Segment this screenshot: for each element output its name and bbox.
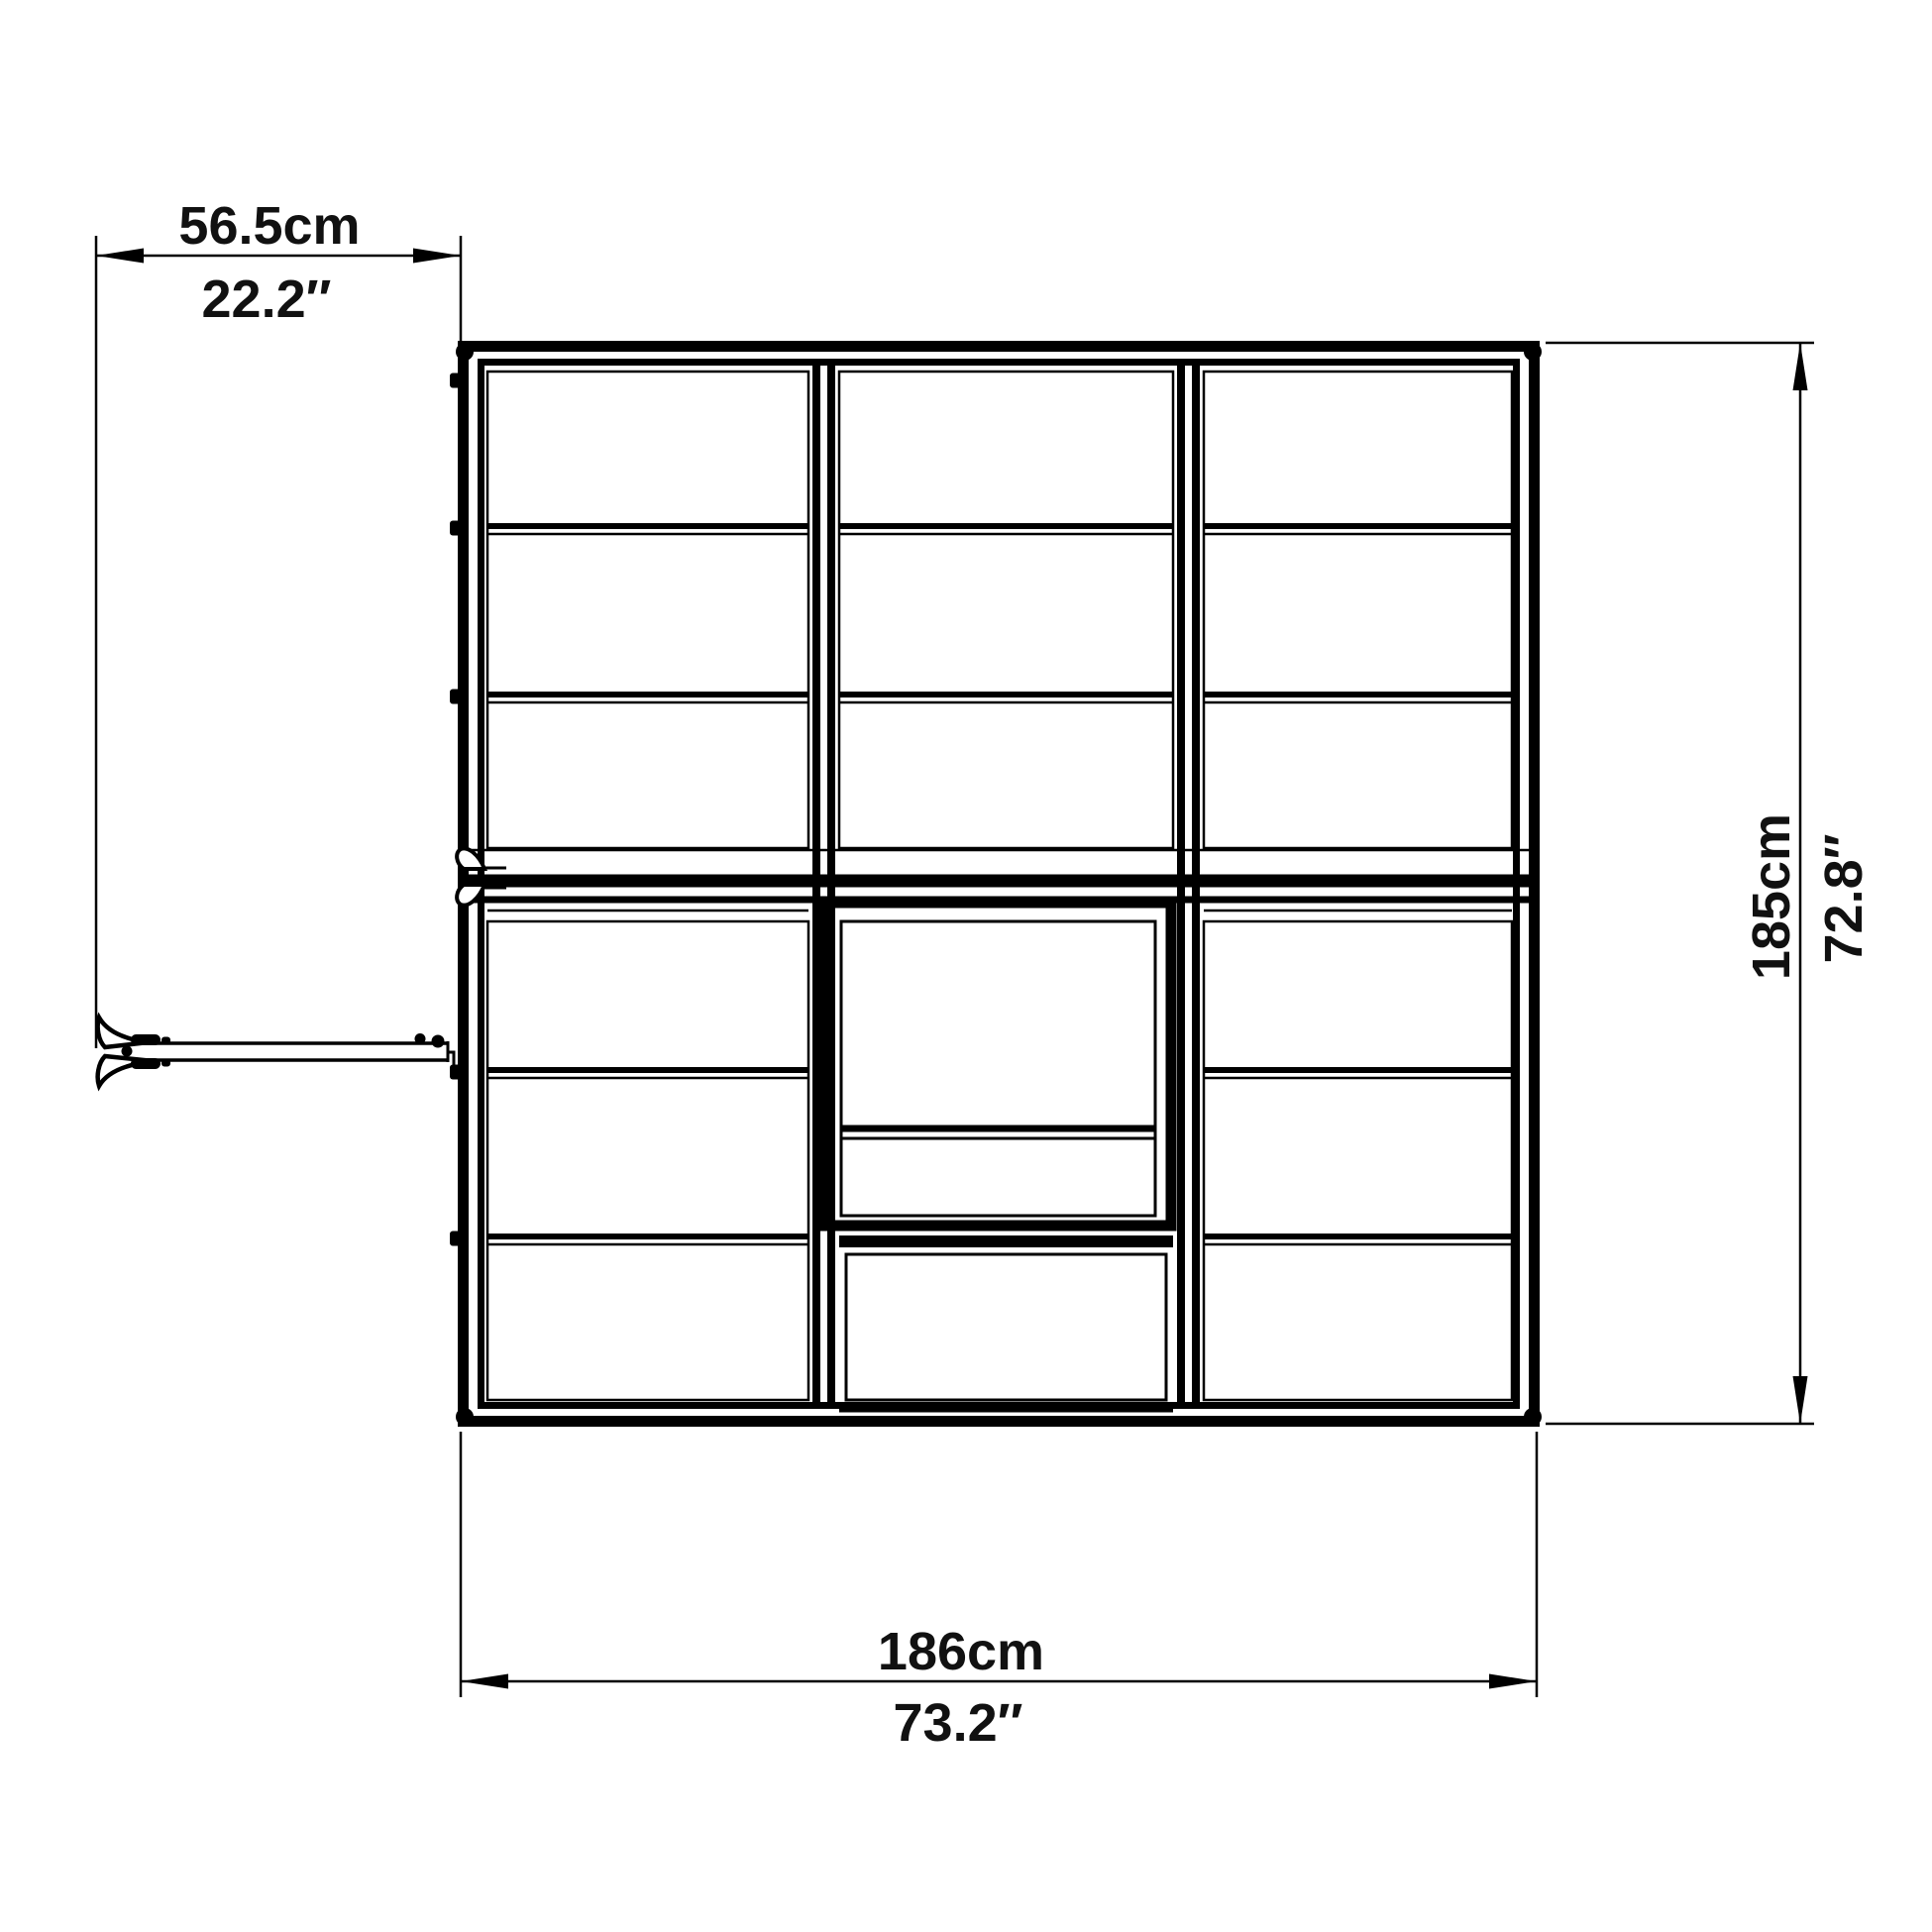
door-width-metric-label: 56.5cm	[178, 196, 360, 256]
corner-cap-bottom-left	[456, 1408, 474, 1426]
corner-cap-bottom-right	[1524, 1408, 1542, 1426]
greenhouse-top-view-drawing: 56.5cm 22.2″ 186cm 73.2″ 185cm 72.8″	[0, 0, 1932, 1932]
overall-depth-metric-label: 185cm	[1742, 813, 1801, 980]
corner-cap-top-left	[456, 343, 474, 361]
overall-depth-imperial-label: 72.8″	[1814, 834, 1874, 964]
overall-width-metric-label: 186cm	[878, 1622, 1044, 1681]
overall-width-imperial-label: 73.2″	[894, 1693, 1023, 1753]
plan-drawing-canvas: 56.5cm 22.2″ 186cm 73.2″ 185cm 72.8″	[0, 0, 1932, 1932]
corner-cap-top-right	[1524, 343, 1542, 361]
door-width-imperial-label: 22.2″	[202, 269, 332, 329]
